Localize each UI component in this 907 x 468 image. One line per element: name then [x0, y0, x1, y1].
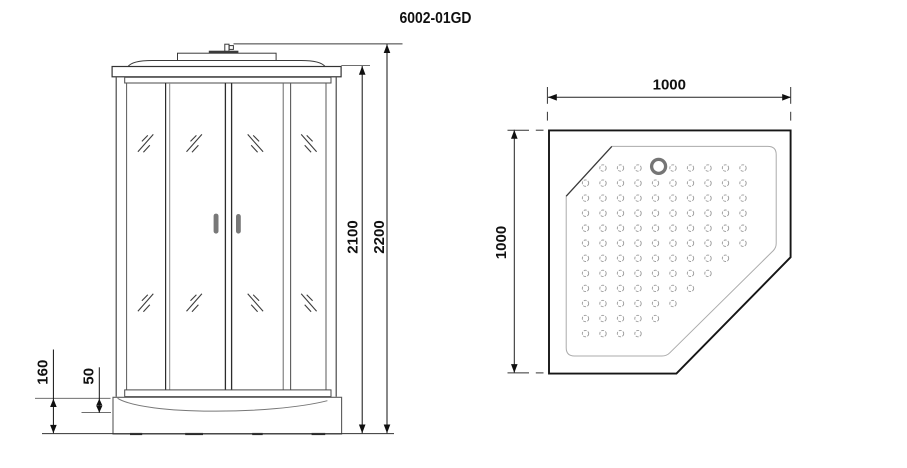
svg-text:2100: 2100 — [345, 220, 362, 253]
svg-text:1000: 1000 — [653, 76, 686, 93]
svg-text:2200: 2200 — [371, 220, 388, 253]
svg-text:1000: 1000 — [493, 226, 510, 259]
svg-text:6002-01GD: 6002-01GD — [400, 10, 472, 27]
svg-text:160: 160 — [35, 360, 52, 385]
svg-text:50: 50 — [81, 368, 98, 385]
